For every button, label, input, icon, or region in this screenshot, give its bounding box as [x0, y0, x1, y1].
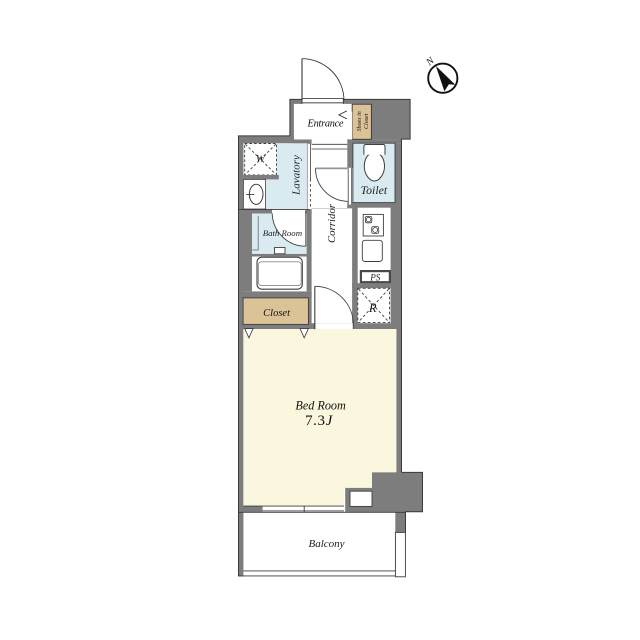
- svg-text:W: W: [256, 153, 266, 165]
- svg-text:Toilet: Toilet: [361, 183, 388, 197]
- svg-text:7.3J: 7.3J: [305, 413, 334, 429]
- svg-text:Bed Room: Bed Room: [295, 399, 346, 413]
- svg-text:Closet: Closet: [263, 308, 291, 319]
- svg-text:Closet: Closet: [364, 113, 370, 129]
- svg-text:PS: PS: [369, 272, 380, 282]
- svg-text:Entrance: Entrance: [307, 118, 344, 129]
- svg-text:Balcony: Balcony: [308, 538, 344, 550]
- svg-text:Lavatory: Lavatory: [291, 155, 303, 196]
- svg-text:Bath Room: Bath Room: [263, 228, 302, 238]
- svg-text:Corridor: Corridor: [326, 203, 338, 243]
- svg-text:Shoes in: Shoes in: [357, 111, 363, 131]
- svg-text:R: R: [368, 301, 377, 315]
